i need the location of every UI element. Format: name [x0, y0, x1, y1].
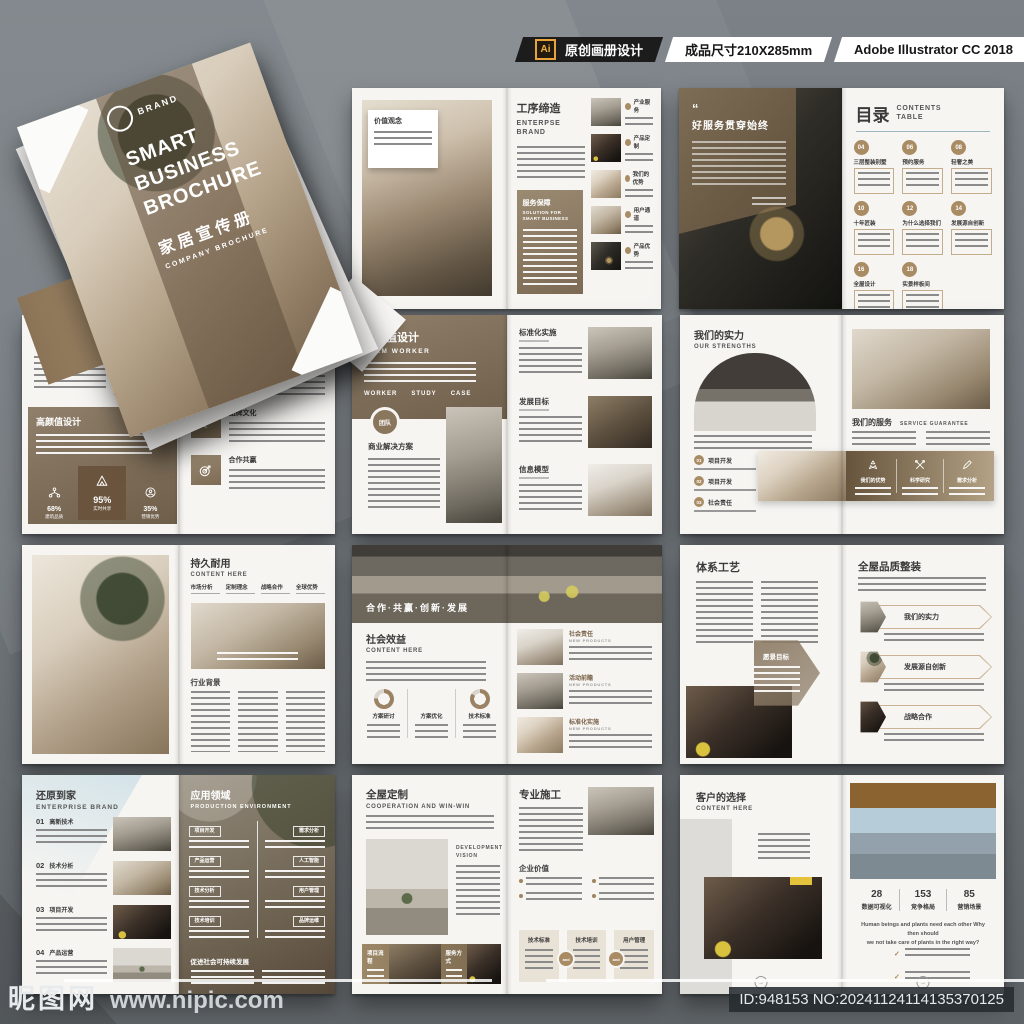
bullet-row [592, 892, 655, 902]
feature-item: 合作共赢 [191, 455, 326, 491]
row-number: 02 [36, 861, 44, 870]
arrow-banner: 战略合作 [872, 705, 992, 729]
pill-left: 产品运营 [189, 856, 221, 867]
text-lines [265, 840, 325, 849]
decor [963, 460, 971, 468]
text-lines [523, 229, 577, 285]
text-lines [625, 225, 654, 237]
decor: 标准化实施 发展目标 信息模型 [519, 327, 652, 524]
item-sub: NEW PRODUCTS [569, 682, 652, 687]
row-photo [113, 817, 171, 851]
arrow-label: 战略合作 [904, 712, 932, 722]
text-lines [519, 416, 582, 444]
page-right: 专业施工 企业价值 技术标准 技术培训 用户管理 and and [507, 775, 662, 994]
strength-band: 我们的优势 科学研究 需求分析 [758, 451, 994, 501]
toc-title: 目录 [856, 101, 890, 126]
toc-entry: 10十年匠装 [854, 201, 895, 255]
text-lines [517, 146, 585, 180]
text-lines [694, 435, 812, 449]
decor [894, 943, 970, 984]
rule-bar [261, 593, 290, 594]
spread-home: 还原到家 ENTERPRISE BRAND 01高新技术 02技术分析 03项目… [22, 775, 335, 994]
text-lines [519, 484, 582, 512]
toc-rule [856, 131, 991, 132]
rule-bar [226, 593, 255, 594]
text-lines [692, 141, 786, 189]
text-lines [696, 581, 753, 643]
decor: 28数据可视化 153竞争格局 85营销场景 [854, 889, 992, 911]
band-cell: 科学研究 [897, 458, 943, 495]
numbered-row: 02技术分析 [36, 861, 171, 899]
text-lines [955, 233, 988, 251]
text-lines [364, 362, 476, 382]
toc-entry: 16全屋设计 [854, 262, 895, 309]
decor [873, 706, 991, 728]
check-row [894, 943, 970, 961]
custom-title: 全屋定制 [366, 787, 499, 802]
panorama-banner-photo: 合作·共赢·创新·发展 [352, 545, 662, 623]
decor: 产业服务 [625, 98, 654, 114]
bullet-dot [592, 879, 596, 883]
text-lines [858, 172, 891, 190]
text-lines [189, 900, 249, 909]
stat-cell: 153竞争格局 [900, 889, 946, 911]
decor [191, 691, 326, 752]
decor: 品牌文化 [229, 408, 326, 444]
decor: DEVELOPMENT VISION [456, 845, 500, 917]
hex-label: 愿景目标 [732, 651, 820, 661]
toc-label: 全屋设计 [854, 280, 895, 288]
band-cell: 需求分析 [944, 458, 990, 495]
row-label: 项目开发 [49, 905, 73, 914]
mountain-icon [95, 474, 109, 488]
tab-study: STUDY [411, 391, 436, 397]
decor [148, 494, 153, 495]
decor: “ 好服务贯穿始终 [692, 102, 792, 206]
toc-subtitle: CONTENTS TABLE [897, 104, 949, 126]
toc-items-box [854, 290, 895, 309]
text-lines [525, 949, 553, 971]
stat-label: 营销场景 [947, 902, 992, 911]
band-gradient: 我们的优势 科学研究 需求分析 [846, 451, 994, 501]
page-left [22, 545, 179, 764]
item-label: 项目开发 [708, 477, 732, 486]
stat-value: 85 [947, 889, 992, 900]
item-label: 社会责任 [708, 498, 732, 507]
pill-left: 技术培训 [189, 916, 221, 927]
text-lines [189, 840, 249, 849]
rule-bar [694, 468, 756, 470]
arrow-item: 发展源自创新 [852, 655, 992, 693]
item-label: 项目开发 [708, 456, 732, 465]
spread-social: 社会效益 CONTENT HERE 方案研讨 方案优化 技术标准 [352, 545, 662, 764]
decor: 标准化实施NEW PRODUCTS [569, 717, 652, 753]
text-lines [36, 434, 152, 458]
text-lines [238, 691, 278, 752]
craft-item: 产品优势 [591, 242, 654, 273]
decor: 发展目标 [519, 396, 582, 456]
toc-number: 16 [854, 262, 869, 277]
stat-value: 153 [900, 889, 945, 900]
row-label: 技术分析 [49, 861, 73, 870]
text-lines [191, 691, 231, 752]
toc-number: 10 [854, 201, 869, 216]
text-lines [884, 683, 984, 693]
toc-items-box [951, 168, 992, 194]
stat-value: 95% [82, 495, 122, 505]
item-photo [591, 170, 621, 198]
text-lines [906, 172, 939, 190]
quote-mark-icon: “ [692, 102, 792, 115]
band-text-cell: 服务方式 [441, 944, 468, 984]
toc-entry: 04三层整装别墅 [854, 140, 895, 194]
pill-right: 品牌运维 [293, 916, 325, 927]
item-sub: NEW PRODUCTS [569, 726, 652, 731]
craft-item: 我们的优势 [591, 170, 654, 201]
bottom-rule-right [546, 979, 1024, 982]
banner-slogan: 合作·共赢·创新·发展 [366, 601, 469, 614]
item-label: 社会责任 [569, 629, 652, 638]
team-section: 标准化实施 [519, 327, 652, 387]
decor: 我们的实力 OUR STRENGTHS [694, 327, 756, 350]
band-label: 需求分析 [944, 477, 990, 484]
text-lines [265, 870, 325, 879]
item-label: 标准化实施 [569, 717, 652, 726]
bullet-dot [625, 211, 631, 218]
person-circle-icon [144, 486, 157, 499]
social-item: 社会责任NEW PRODUCTS [517, 629, 652, 665]
tools-icon [914, 459, 926, 471]
column-label-cell: 全球优势 [296, 583, 325, 594]
decor: 01项目开发 02项目开发 03社会责任 [694, 455, 756, 512]
stat-value: 28 [854, 889, 899, 900]
donut-label: 技术标准 [459, 712, 500, 720]
toc-grid: 04三层整装别墅 06预约服务 08轻奢之美 10十年匠装 12为什么选择我们 … [842, 140, 1005, 309]
text-lines [905, 971, 970, 979]
text-lines [949, 487, 986, 495]
stat-value: 68% [36, 506, 72, 513]
box-label: 技术培训 [573, 936, 601, 944]
stat-label: 营销优势 [132, 514, 168, 520]
band-cell: 我们的优势 [850, 458, 896, 495]
page-left: 价值观念 [352, 88, 507, 309]
decor: 产业服务 产品定制 我们的优势 用户通道 产品优势 [591, 98, 654, 273]
decor: 持久耐用 CONTENT HERE [191, 555, 248, 578]
item-label: 活动前瞻 [569, 673, 652, 682]
decor [696, 581, 818, 643]
pencil-icon [961, 459, 973, 471]
text-lines [855, 487, 892, 495]
decor: 目录 CONTENTS TABLE [842, 88, 1005, 126]
box-label: 用户管理 [620, 936, 648, 944]
value-box: 技术标准 [519, 930, 559, 982]
image-id-badge: ID:948153 NO:20241124114135370125 [729, 987, 1014, 1012]
decor [869, 460, 876, 468]
value-heading: 企业价值 [519, 863, 549, 874]
text-lines [906, 294, 939, 309]
text-lines [884, 633, 984, 643]
durable-title: 持久耐用 [191, 555, 248, 570]
item-photo [591, 206, 621, 234]
craft-item: 产品定制 [591, 134, 654, 165]
numbered-row: 03项目开发 [36, 905, 171, 943]
text-lines [36, 917, 107, 935]
text-lines [858, 233, 891, 251]
text-lines [569, 646, 652, 664]
team-badge: 团队 [370, 407, 400, 437]
industry-heading: 行业背景 [191, 677, 221, 688]
toc-label: 三层整装别墅 [854, 158, 895, 166]
decor: 我们的优势 [625, 170, 654, 186]
pill-left: 项目开发 [189, 826, 221, 837]
band-photo [389, 944, 441, 984]
page-left: 我们的实力 OUR STRENGTHS 01项目开发 02项目开发 03社会责任 [680, 315, 842, 534]
numbered-row: 01高新技术 [36, 817, 171, 855]
page-right: 我们的服务 SERVICE GUARANTEE [842, 315, 1004, 534]
text-lines [902, 487, 939, 495]
decor: 03项目开发 [36, 905, 107, 914]
photo-caption-lines [217, 652, 298, 662]
row-label: 产品运营 [49, 948, 73, 957]
custom-band: 项目流程 服务方式 [362, 944, 501, 984]
spread-system: 体系工艺 愿景目标 全屋品质整装 我们的实力 发展源自创新 战略合 [680, 545, 1004, 764]
donut-cell: 技术标准 [456, 689, 503, 738]
bullet-row [592, 877, 655, 887]
page-left: 还原到家 ENTERPRISE BRAND 01高新技术 02技术分析 03项目… [22, 775, 179, 994]
numbered-item: 03社会责任 [694, 497, 756, 512]
section-label: 信息模型 [519, 464, 582, 475]
living-photo [588, 787, 654, 835]
item-photo [591, 134, 621, 162]
decor: 社会责任NEW PRODUCTS [569, 629, 652, 665]
stat-cell: 68% 建筑品质 [36, 486, 72, 520]
decor: 产品定制 [625, 134, 654, 165]
text-lines [955, 172, 988, 190]
band-text-cell: 项目流程 [362, 944, 389, 984]
toc-items-box [854, 229, 895, 255]
bullet-dot [519, 879, 523, 883]
spread-contents: “ 好服务贯穿始终 目录 CONTENTS TABLE 04三层整装别墅 06预… [679, 88, 1004, 309]
decor: 市场分析 定制理念 战略合作 全球优势 [191, 583, 326, 594]
value-tag-card: 价值观念 [368, 110, 438, 168]
adobe-illustrator-icon: Ai [535, 39, 556, 60]
living-room-photo [446, 407, 502, 523]
decor: 信息模型 [519, 464, 582, 524]
application-subtitle: PRODUCTION ENVIRONMENT [191, 804, 292, 810]
decor: 01高新技术 02技术分析 03项目开发 04产品运营 [36, 817, 171, 986]
service-subtitle: SERVICE GUARANTEE [900, 421, 969, 427]
choice-subtitle: CONTENT HERE [696, 806, 753, 812]
decor: Adobe Illustrator CC 2018 [854, 42, 1013, 57]
text-lines [265, 900, 325, 909]
decor: 我们的优势 [625, 170, 654, 201]
stat-cell: 28数据可视化 [854, 889, 900, 911]
toc-number: 18 [902, 262, 917, 277]
durable-subtitle: CONTENT HERE [191, 572, 248, 578]
toc-label: 十年匠装 [854, 219, 895, 227]
bullet-row [519, 892, 582, 902]
team-section: 信息模型 [519, 464, 652, 524]
header-size-tag: 成品尺寸210X285mm [665, 37, 832, 62]
decor: 项目开发 [189, 819, 249, 849]
text-lines [625, 117, 654, 129]
text-lines [752, 666, 800, 694]
stat-label: 竞争格局 [900, 902, 945, 911]
column-label-cell: 市场分析 [191, 583, 220, 594]
arrow-banner: 我们的实力 [872, 605, 992, 629]
english-caption-line: Human beings and plants need each other … [856, 921, 990, 939]
craft-item: 产业服务 [591, 98, 654, 129]
stat-label: 数据可视化 [854, 902, 899, 911]
arrow-item: 我们的实力 [852, 605, 992, 643]
donut-cell: 方案研讨 [360, 689, 408, 738]
item-number: 01 [694, 455, 704, 465]
text-lines [229, 469, 326, 491]
decor: 技术标准 技术培训 用户管理 [519, 930, 654, 982]
decor: 产品优势 [625, 242, 654, 258]
header-software-tag: Adobe Illustrator CC 2018 [834, 37, 1024, 62]
decor: 技术分析 [189, 879, 249, 909]
page-left: 体系工艺 愿景目标 [680, 545, 842, 764]
donut-label: 方案研讨 [363, 712, 404, 720]
bullet-row [519, 877, 582, 887]
toc-number: 04 [854, 140, 869, 155]
item-photo [517, 717, 563, 753]
watermark: 昵图网 www.nipic.com [8, 977, 284, 1016]
page-left-photo: “ 好服务贯穿始终 [679, 88, 842, 309]
item-photo [517, 629, 563, 665]
text-lines [366, 815, 494, 831]
decor: 68% 建筑品质 95% 实时共享 35% 营销优势 [36, 466, 169, 520]
column-label-cell: 战略合作 [261, 583, 290, 594]
stat-cell-highlight: 95% 实时共享 [78, 466, 126, 520]
section-sub-bar [519, 409, 549, 411]
design-tag-label: 原创画册设计 [565, 40, 643, 59]
craft-title: 工序缔造 [517, 100, 585, 116]
decor [592, 877, 655, 902]
stat-value: 35% [132, 506, 168, 513]
text-lines [526, 892, 582, 902]
page-left: 全屋定制 COOPERATION AND WIN-WIN DEVELOPMENT… [352, 775, 507, 994]
decor: 合作共赢 [229, 455, 326, 491]
decor: 产品优势 [625, 242, 654, 273]
text-lines [519, 347, 582, 375]
service-panel: 服务保障 SOLUTION FOR SMART BUSINESS [517, 190, 583, 294]
text-lines [463, 724, 497, 738]
toc-number: 14 [951, 201, 966, 216]
social-item: 标准化实施NEW PRODUCTS [517, 717, 652, 753]
pill-right: 需求分析 [293, 826, 325, 837]
item-sub: NEW PRODUCTS [569, 638, 652, 643]
donut-chart [374, 689, 394, 709]
item-photo [517, 673, 563, 709]
checkmark-icon [894, 943, 900, 961]
header-design-tag: Ai 原创画册设计 [515, 37, 663, 62]
service-title: 我们的服务 [852, 417, 892, 428]
column-label: 定制理念 [226, 583, 255, 591]
custom-subtitle: COOPERATION AND WIN-WIN [366, 804, 499, 810]
decor: 01高新技术 [36, 817, 107, 826]
text-lines [858, 577, 986, 591]
row-label: 高新技术 [49, 817, 73, 826]
section-photo [588, 464, 652, 516]
toc-items-box [902, 290, 943, 309]
arrow-label: 发展源自创新 [904, 662, 946, 672]
signature-lines [752, 197, 786, 206]
sofa-photo [366, 839, 448, 935]
network-icon [48, 486, 61, 499]
section-sub-bar [519, 477, 549, 479]
solutions-heading: 商业解决方案 [368, 441, 440, 452]
toc-items-box [902, 229, 943, 255]
decor [852, 431, 990, 449]
site-url: www.nipic.com [110, 987, 284, 1015]
toc-entry: 08轻奢之美 [951, 140, 992, 194]
social-title: 社会效益 [366, 631, 486, 646]
text-lines [519, 807, 583, 853]
stat-label: 建筑品质 [36, 514, 72, 520]
decor: 产品定制 [625, 134, 654, 150]
timeline-level: 项目开发 需求分析 [189, 819, 326, 849]
text-lines [625, 261, 654, 273]
text-lines [569, 690, 652, 708]
item-label: 产品优势 [634, 242, 653, 258]
bullet-dot [625, 247, 631, 254]
column-label: 市场分析 [191, 583, 220, 591]
column-label: 战略合作 [261, 583, 290, 591]
decor: 04产品运营 [36, 948, 107, 957]
item-photo [591, 98, 621, 126]
timeline-level: 产品运营 人工智能 [189, 849, 326, 879]
text-lines [456, 865, 500, 917]
toc-items-box [951, 229, 992, 255]
tab-worker: WORKER [364, 391, 397, 397]
decor: 方案研讨 方案优化 技术标准 [360, 689, 503, 738]
decor: 还原到家 ENTERPRISE BRAND [36, 787, 119, 811]
spread-durable: 持久耐用 CONTENT HERE 市场分析 定制理念 战略合作 全球优势 行业… [22, 545, 335, 764]
band-label: 项目流程 [367, 949, 384, 965]
decor [519, 877, 582, 902]
decor: Ai 原创画册设计 [535, 39, 643, 60]
text-lines [625, 189, 654, 201]
craft-subtitle: ENTERPSE BRAND [517, 119, 585, 138]
stat-cell: 85营销场景 [947, 889, 992, 911]
home-title: 还原到家 [36, 787, 119, 802]
numbered-item: 01项目开发 [694, 455, 756, 470]
decor [149, 490, 152, 493]
choice-title: 客户的选择 [696, 789, 753, 804]
decor: WORKER STUDY CASE [364, 391, 495, 397]
decor: 01项目开发 [694, 455, 756, 465]
spread-custom: 全屋定制 COOPERATION AND WIN-WIN DEVELOPMENT… [352, 775, 662, 994]
arrow-item: 战略合作 [852, 705, 992, 743]
kitchen-lemons-photo [704, 877, 822, 959]
decor: 03项目开发 [36, 905, 107, 943]
wide-interior-photo [191, 603, 326, 669]
recycle-icon [867, 459, 879, 471]
toc-label: 为什么选择我们 [902, 219, 943, 227]
page-right: 持久耐用 CONTENT HERE 市场分析 定制理念 战略合作 全球优势 行业… [179, 545, 336, 764]
bullet-dot [625, 103, 631, 110]
stat-label: 实时共享 [82, 506, 122, 512]
timeline-level: 技术分析 用户管理 [189, 879, 326, 909]
toc-entry: 06预约服务 [902, 140, 943, 194]
decor: 商业解决方案 [368, 441, 440, 512]
decor: 用户通道 [625, 206, 654, 222]
application-title: 应用领域 [191, 787, 292, 802]
band-kitchen-photo [758, 451, 846, 501]
decor: 02项目开发 [694, 476, 756, 486]
